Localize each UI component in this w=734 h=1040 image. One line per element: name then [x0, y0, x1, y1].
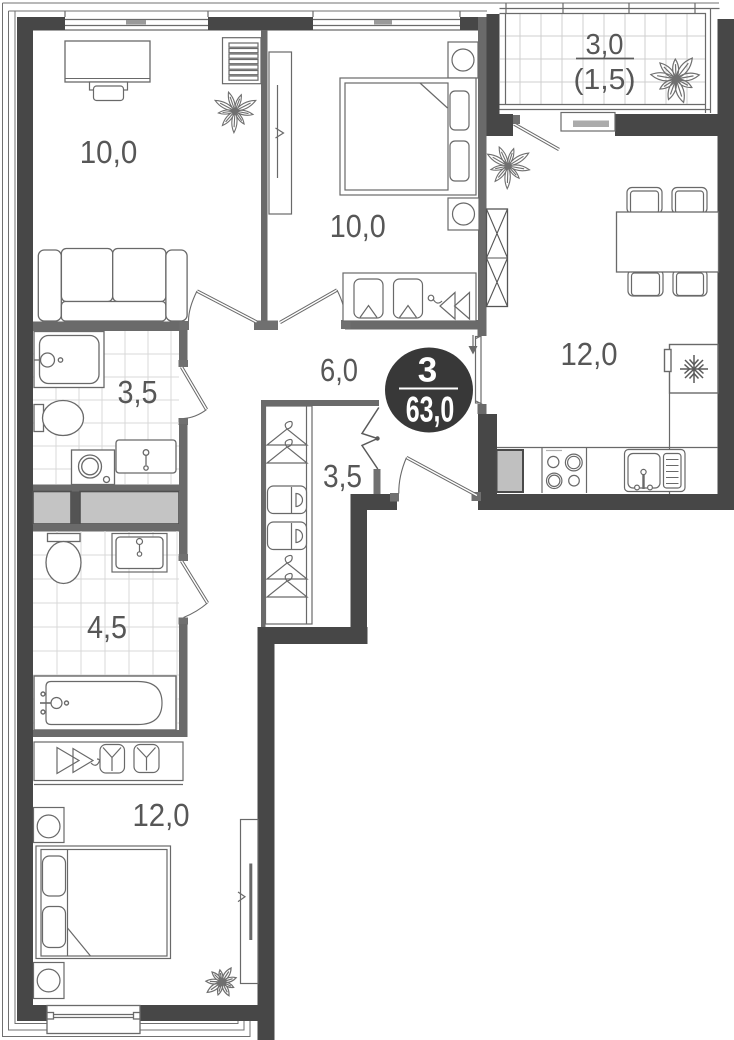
- svg-text:(1,5): (1,5): [574, 64, 636, 96]
- svg-text:12,0: 12,0: [133, 797, 190, 833]
- svg-text:3,5: 3,5: [323, 458, 362, 494]
- svg-text:12,0: 12,0: [561, 336, 618, 372]
- svg-text:10,0: 10,0: [80, 134, 138, 170]
- svg-text:3,0: 3,0: [586, 29, 624, 61]
- svg-text:4,5: 4,5: [87, 609, 127, 645]
- svg-text:3: 3: [418, 351, 437, 390]
- svg-text:63,0: 63,0: [406, 389, 455, 430]
- svg-text:6,0: 6,0: [320, 352, 358, 388]
- svg-text:3,5: 3,5: [118, 374, 158, 410]
- svg-text:10,0: 10,0: [330, 208, 386, 244]
